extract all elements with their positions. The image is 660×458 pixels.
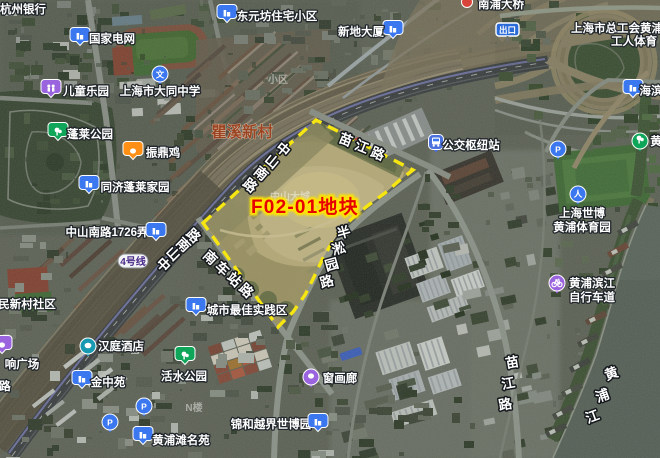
svg-text:国家电网: 国家电网 <box>89 32 135 46</box>
svg-text:活水公园: 活水公园 <box>161 369 207 383</box>
svg-text:黄浦体育园: 黄浦体育园 <box>553 220 611 234</box>
svg-text:黄浦滨江: 黄浦滨江 <box>569 276 615 290</box>
svg-text:新地大厦: 新地大厦 <box>338 25 384 39</box>
svg-text:锦和越界世博园: 锦和越界世博园 <box>231 417 312 431</box>
svg-text:工人体育: 工人体育 <box>611 34 657 48</box>
svg-text:城市最佳实践区: 城市最佳实践区 <box>207 303 288 317</box>
svg-text:振鼎鸡: 振鼎鸡 <box>146 146 181 160</box>
svg-text:民新村社区: 民新村社区 <box>0 297 56 311</box>
svg-text:4号线: 4号线 <box>120 255 146 268</box>
svg-text:汉庭酒店: 汉庭酒店 <box>98 339 144 353</box>
svg-text:黄浦滩名苑: 黄浦滩名苑 <box>152 433 210 447</box>
svg-text:上海世博: 上海世博 <box>559 206 605 220</box>
svg-text:路: 路 <box>0 379 11 393</box>
svg-text:上海市大同中学: 上海市大同中学 <box>120 84 201 98</box>
svg-text:公交枢纽站: 公交枢纽站 <box>442 138 500 152</box>
svg-text:N楼: N楼 <box>185 401 202 414</box>
svg-text:出口: 出口 <box>499 25 516 35</box>
svg-text:窗画廊: 窗画廊 <box>323 371 358 385</box>
svg-text:海滨: 海滨 <box>640 84 660 98</box>
svg-text:P: P <box>141 401 147 411</box>
svg-text:上海市总工会黄浦: 上海市总工会黄浦 <box>571 21 660 35</box>
svg-text:东元坊住宅小区: 东元坊住宅小区 <box>237 9 318 23</box>
svg-text:杭州银行: 杭州银行 <box>0 2 46 16</box>
svg-text:自行车道: 自行车道 <box>569 290 615 304</box>
svg-text:文: 文 <box>156 69 165 79</box>
svg-text:响广场: 响广场 <box>5 357 40 371</box>
svg-text:儿童乐园: 儿童乐园 <box>62 84 109 98</box>
svg-text:F02-01地块: F02-01地块 <box>251 195 359 218</box>
svg-text:南浦大桥: 南浦大桥 <box>478 0 524 11</box>
svg-text:同济蓬莱家园: 同济蓬莱家园 <box>101 180 170 194</box>
svg-text:P: P <box>555 144 561 154</box>
svg-text:瞿溪新村: 瞿溪新村 <box>210 122 274 141</box>
svg-text:金中苑: 金中苑 <box>90 375 126 389</box>
svg-text:中山南路1726弄: 中山南路1726弄 <box>65 225 149 239</box>
svg-text:P: P <box>107 417 113 427</box>
svg-text:人: 人 <box>574 189 583 199</box>
svg-text:小区: 小区 <box>267 73 288 86</box>
svg-text:蓬莱公园: 蓬莱公园 <box>67 127 113 141</box>
svg-text:黄: 黄 <box>650 134 660 148</box>
